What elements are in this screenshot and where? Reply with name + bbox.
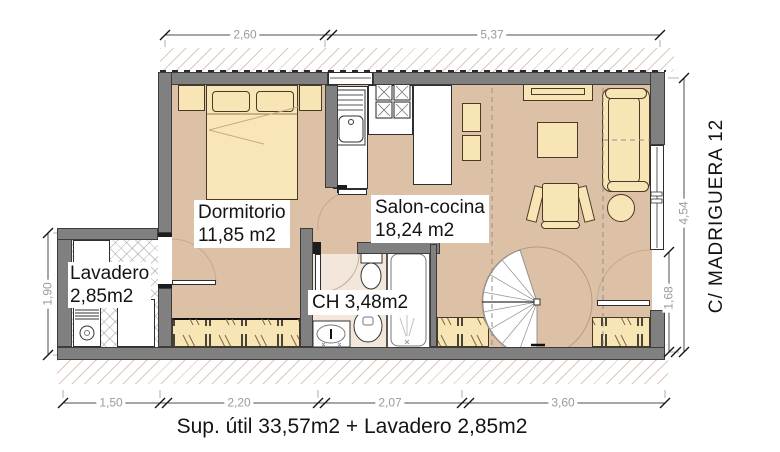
wardrobe [172,318,300,347]
label-dormitorio-name: Dormitorio [198,201,286,224]
armchair-seat [542,183,579,222]
label-dormitorio: Dormitorio 11,85 m2 [194,200,290,248]
armchair-front [541,221,580,229]
door-leaf-balcony [597,300,650,306]
door-leaf-lavadero [172,280,216,285]
label-salon-name: Salon-cocina [375,196,485,219]
kitchen-counter-stove [368,85,413,135]
wall-lavadero-top [57,228,158,240]
label-lavadero-area: 2,85m2 [70,285,149,308]
label-dormitorio-area: 11,85 m2 [198,224,286,247]
door-leaf-bathroom [315,254,321,292]
label-lavadero-name: Lavadero [70,262,149,285]
dim-bottom-4: 3,60 [548,397,577,410]
wall-bathroom-left [300,228,313,347]
stool-2 [462,135,481,161]
window-right [650,145,664,250]
wall-bathroom-top [357,242,440,254]
wall-top-right [373,72,665,85]
wall-left-lower [158,288,172,347]
sofa-seat [608,97,640,183]
dim-right-1: 4,54 [678,198,691,227]
dim-bottom-2: 2,20 [224,397,253,410]
coffee-table [537,122,578,158]
label-salon-cocina: Salon-cocina 18,24 m2 [371,195,489,243]
dim-top-2: 5,37 [477,29,506,42]
wall-bottom [57,347,665,360]
bench-right [592,317,650,347]
label-salon-area: 18,24 m2 [375,219,485,242]
dim-top-1: 2,60 [230,29,259,42]
kitchen-island [413,85,452,185]
jamb-lavadero-door-top [158,233,172,237]
tv-set [531,88,585,95]
jamb-bathroom-door [313,242,321,254]
floor-plan-page: { "rooms": { "dormitorio": { "name": "Do… [0,0,780,452]
sofa-armrest-bottom [607,181,649,192]
jamb-lavadero-door-bottom [158,284,172,288]
washing-machine [73,303,101,347]
pillow-left [212,91,250,112]
nightstand-right [299,85,322,111]
wall-left-upper [158,72,172,233]
bench-left [437,317,489,347]
hatch-band-bottom [57,360,668,384]
surface-caption: Sup. útil 33,57m2 + Lavadero 2,85m2 [177,415,528,439]
street-label: C/ MADRIGUERA 12 [706,119,728,313]
kitchen-window [328,72,373,85]
label-bathroom: CH 3,48m2 [308,290,412,315]
door-leaf-bedroom [338,189,367,195]
stool-1 [462,103,481,132]
sofa-armrest-top [605,88,647,99]
kitchen-sink-run [333,86,368,189]
side-table-round [607,194,635,222]
label-lavadero: Lavadero 2,85m2 [68,262,151,308]
wall-bathroom-right [430,244,437,347]
wall-kitchen-divider [325,85,338,188]
hatch-band-top [160,48,674,72]
dim-right-2: 1,68 [663,283,676,312]
nightstand-left [178,85,205,111]
wall-right-upper [650,72,665,145]
dim-bottom-3: 2,07 [375,397,404,410]
wall-top-left [160,72,328,85]
plan-canvas: 2,60 5,37 1,50 2,20 2,07 3,60 1,90 4,54 … [0,0,780,452]
pillow-right [256,91,294,112]
dim-bottom-1: 1,50 [96,397,125,410]
dim-left-1: 1,90 [42,279,55,308]
